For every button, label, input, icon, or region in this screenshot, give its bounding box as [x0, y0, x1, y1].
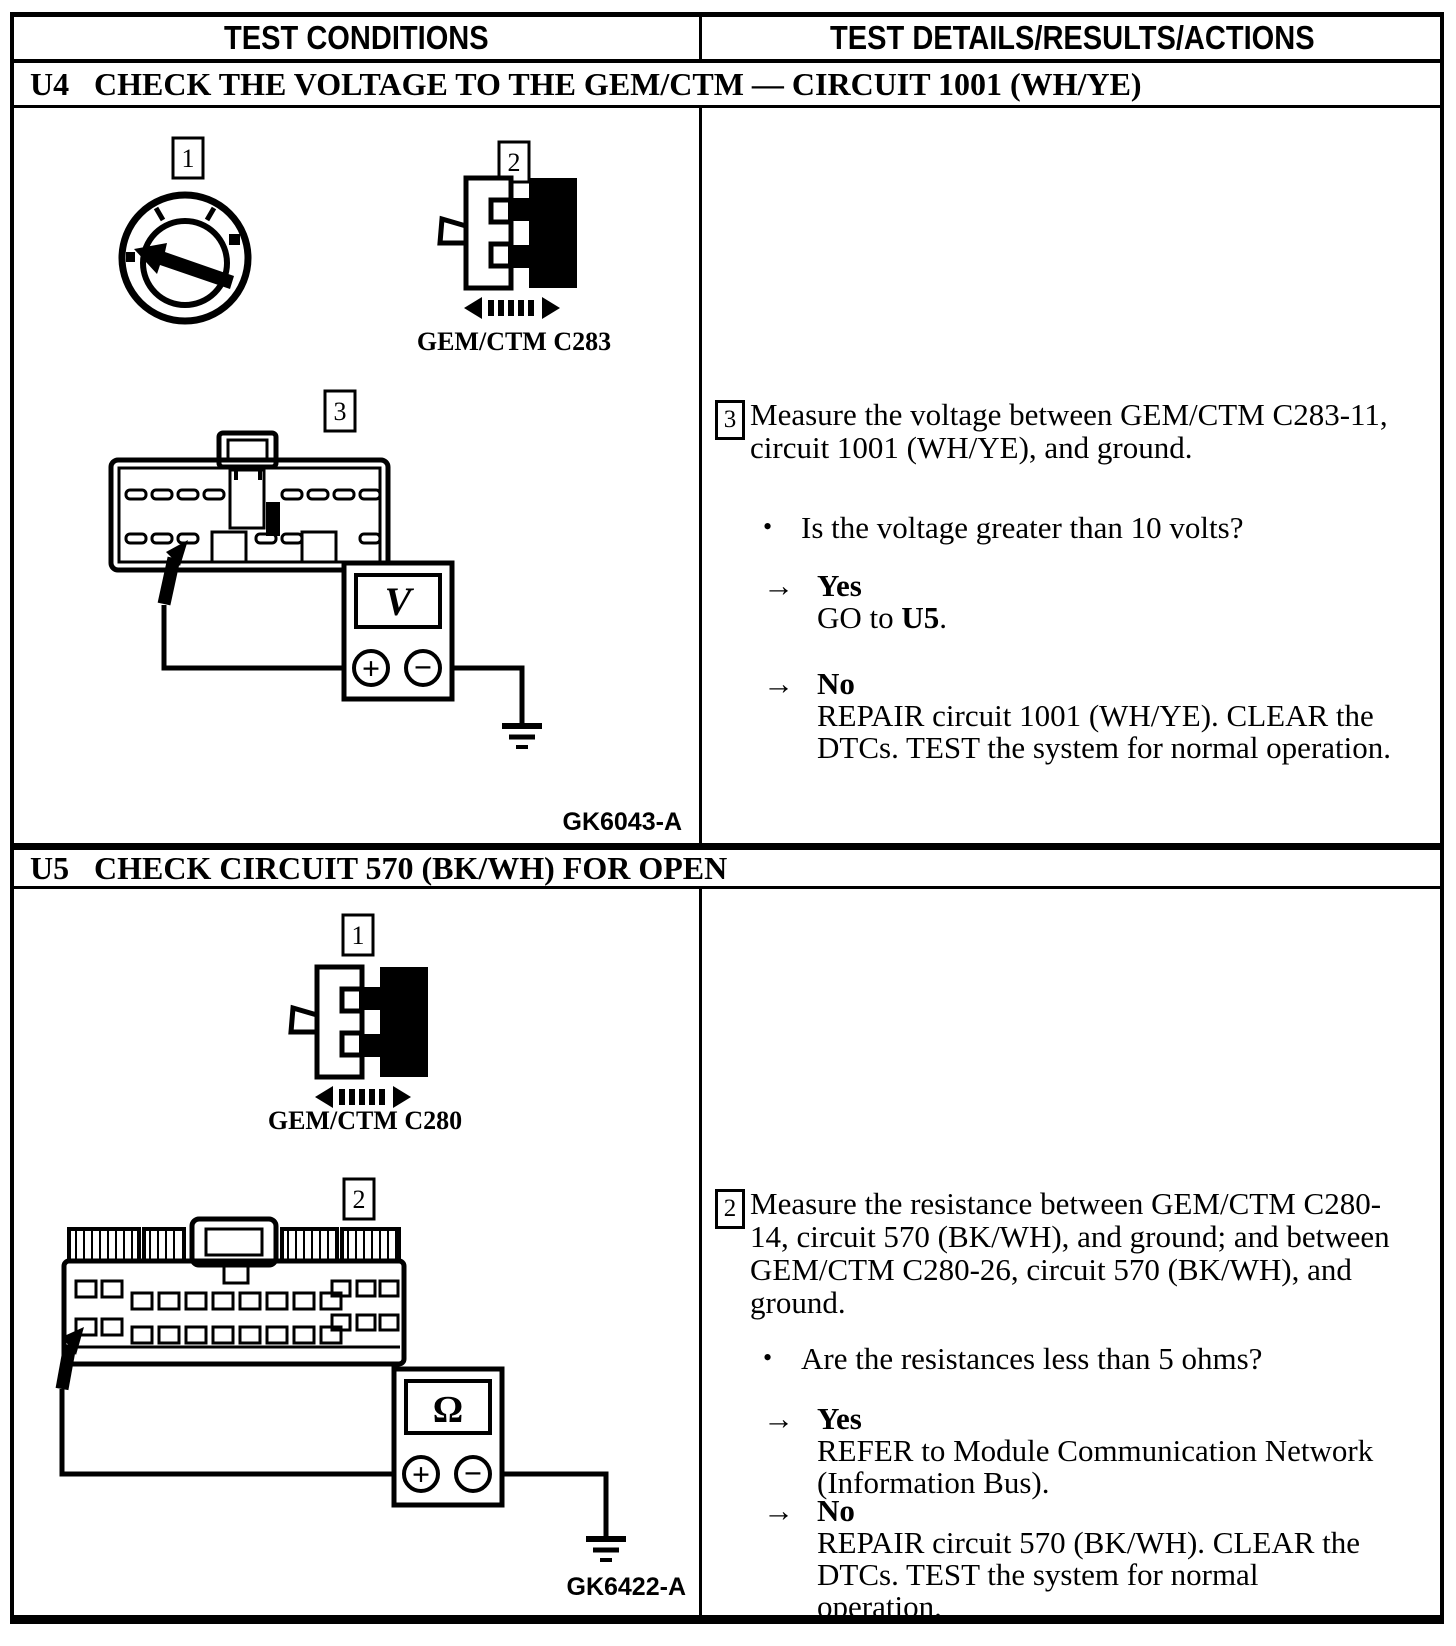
svg-text:1: 1	[182, 144, 195, 173]
u4-yes-action: GO to U5.	[817, 602, 1392, 634]
u4-no-action: REPAIR circuit 1001 (WH/YE). CLEAR the D…	[817, 700, 1392, 764]
header-test-details-cell: TEST DETAILS/RESULTS/ACTIONS	[705, 17, 1440, 59]
u4-yes-result: → Yes GO to U5.	[763, 570, 1403, 634]
bullet-icon: •	[763, 510, 801, 546]
u5-step-title: CHECK CIRCUIT 570 (BK/WH) FOR OPEN	[94, 850, 727, 887]
u4-diagram: 1 2	[14, 108, 702, 843]
u5-figure-code: GK6422-A	[567, 1573, 687, 1601]
u4-detail-step-box: 3	[715, 400, 745, 440]
result-arrow-icon: →	[763, 1403, 817, 1499]
u5-marker-2: 2	[344, 1179, 374, 1219]
svg-text:−: −	[414, 649, 432, 685]
u4-no-label: No	[817, 668, 1392, 700]
c283-connector-drawing	[111, 433, 388, 570]
u5-no-result: → No REPAIR circuit 570 (BK/WH). CLEAR t…	[763, 1495, 1413, 1623]
u5-title-row: U5 CHECK CIRCUIT 570 (BK/WH) FOR OPEN	[14, 843, 1440, 889]
svg-text:+: +	[362, 650, 380, 686]
disconnect-arrows-icon	[464, 297, 560, 319]
svg-text:2: 2	[508, 148, 521, 177]
u5-connector-label: GEM/CTM C280	[268, 1106, 462, 1135]
result-arrow-icon: →	[763, 1495, 817, 1623]
u5-detail-step-box: 2	[715, 1189, 745, 1229]
u4-details-cell: 3 Measure the voltage between GEM/CTM C2…	[705, 108, 1440, 843]
u4-yes-label: Yes	[817, 570, 1392, 602]
svg-text:1: 1	[352, 921, 365, 950]
u5-details-cell: 2 Measure the resistance between GEM/CTM…	[705, 889, 1440, 1615]
u5-marker-1: 1	[343, 915, 373, 955]
header-test-details: TEST DETAILS/RESULTS/ACTIONS	[830, 19, 1315, 57]
result-arrow-icon: →	[763, 668, 817, 764]
u5-diagram: 1	[14, 889, 702, 1615]
u5-question: Are the resistances less than 5 ohms?	[801, 1341, 1262, 1377]
u4-no-result: → No REPAIR circuit 1001 (WH/YE). CLEAR …	[763, 668, 1403, 764]
ohmmeter-symbol: Ω	[433, 1389, 463, 1431]
u4-step-id: U4	[30, 66, 94, 103]
u5-instruction: Measure the resistance between GEM/CTM C…	[750, 1187, 1405, 1319]
u5-step-id: U5	[30, 850, 94, 887]
u4-question-row: • Is the voltage greater than 10 volts?	[763, 510, 1403, 546]
test-table: TEST CONDITIONS TEST DETAILS/RESULTS/ACT…	[10, 12, 1444, 1624]
pinpoint-test-page: TEST CONDITIONS TEST DETAILS/RESULTS/ACT…	[0, 0, 1456, 1646]
svg-text:+: +	[412, 1456, 430, 1492]
disconnect-arrows-icon	[315, 1086, 411, 1108]
voltmeter-icon: V + −	[344, 563, 452, 699]
ohmmeter-icon: Ω + −	[394, 1369, 502, 1505]
header-test-conditions-cell: TEST CONDITIONS	[14, 17, 702, 59]
disconnect-connector-icon	[291, 967, 428, 1108]
ignition-switch-icon	[122, 195, 248, 321]
u5-question-row: • Are the resistances less than 5 ohms?	[763, 1341, 1403, 1377]
u4-marker-3: 3	[325, 391, 355, 431]
c280-connector-drawing	[64, 1219, 404, 1364]
u4-content-row: 1 2	[14, 108, 1440, 843]
table-header-row: TEST CONDITIONS TEST DETAILS/RESULTS/ACT…	[14, 17, 1440, 63]
voltmeter-symbol: V	[385, 579, 415, 624]
u4-marker-1: 1	[173, 138, 203, 178]
u4-connector-label: GEM/CTM C283	[417, 327, 611, 356]
u5-no-label: No	[817, 1495, 1377, 1527]
u5-test-probe-and-wires	[62, 1327, 606, 1537]
result-arrow-icon: →	[763, 570, 817, 634]
svg-text:2: 2	[353, 1185, 366, 1214]
svg-text:3: 3	[334, 397, 347, 426]
svg-text:−: −	[464, 1455, 482, 1491]
u5-yes-result: → Yes REFER to Module Communication Netw…	[763, 1403, 1413, 1499]
header-test-conditions: TEST CONDITIONS	[224, 19, 489, 57]
u4-step-title: CHECK THE VOLTAGE TO THE GEM/CTM — CIRCU…	[94, 66, 1142, 103]
ground-icon	[586, 1539, 626, 1560]
u4-conditions-cell: 1 2	[14, 108, 702, 843]
u5-yes-label: Yes	[817, 1403, 1387, 1435]
disconnect-connector-icon	[440, 178, 577, 319]
u4-title-row: U4 CHECK THE VOLTAGE TO THE GEM/CTM — CI…	[14, 63, 1440, 108]
u5-content-row: 1	[14, 889, 1440, 1615]
u4-figure-code: GK6043-A	[563, 808, 683, 836]
u5-yes-action: REFER to Module Communication Network (I…	[817, 1435, 1387, 1499]
u4-question: Is the voltage greater than 10 volts?	[801, 510, 1243, 546]
u4-instruction: Measure the voltage between GEM/CTM C283…	[750, 398, 1410, 464]
bullet-icon: •	[763, 1341, 801, 1377]
ground-icon	[502, 726, 542, 747]
u5-conditions-cell: 1	[14, 889, 702, 1615]
u5-no-action: REPAIR circuit 570 (BK/WH). CLEAR the DT…	[817, 1527, 1377, 1623]
